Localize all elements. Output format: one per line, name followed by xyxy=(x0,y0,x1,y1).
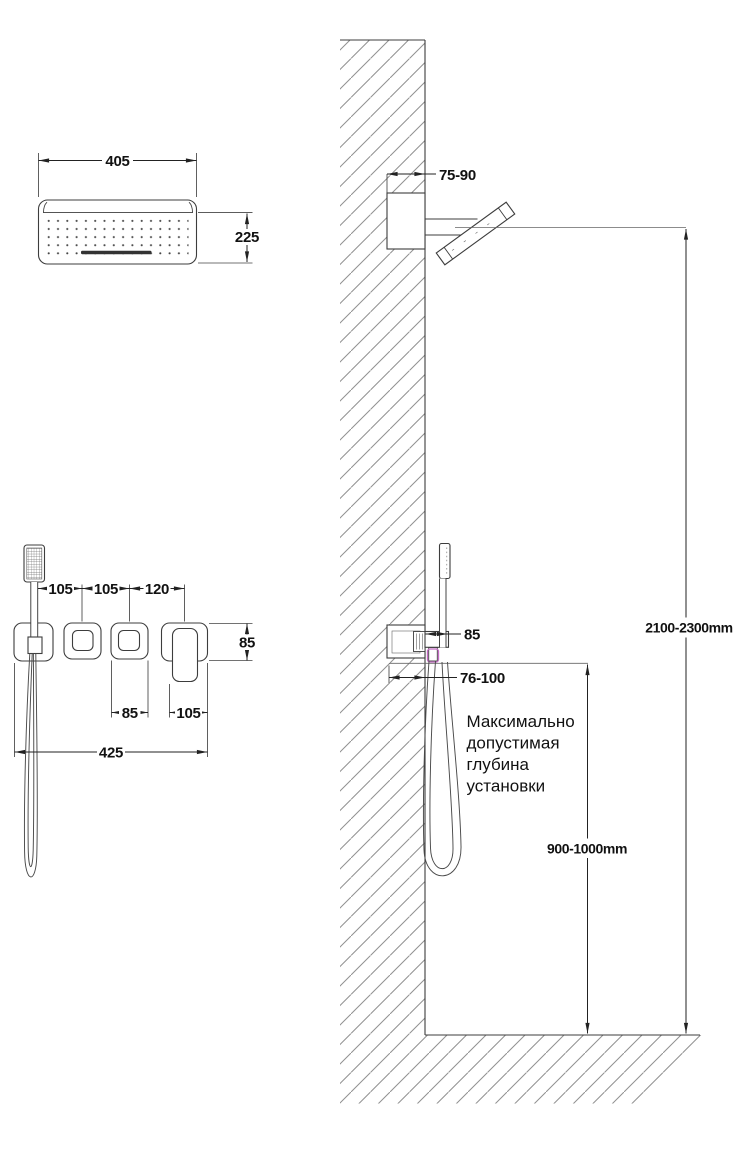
wall-section-view: 75-90 2100-2300mm xyxy=(340,40,735,1104)
dimension-225: 225 xyxy=(198,213,262,263)
dimension-label: 85 xyxy=(122,705,138,722)
wand-holder xyxy=(28,637,42,654)
dimension-spacing-row: 105 105 120 xyxy=(38,581,185,622)
installation-depth-note: Максимально допустимая глубина установки xyxy=(467,712,575,796)
dimension-label: 105 xyxy=(176,705,200,722)
hand-shower-wand xyxy=(24,545,45,877)
plate-valve-1 xyxy=(64,623,101,659)
dimension-2100-2300: 2100-2300mm xyxy=(455,228,735,1034)
dimension-label: 405 xyxy=(105,153,129,170)
shower-hose xyxy=(423,661,461,876)
dimension-label: 900-1000mm xyxy=(547,840,627,856)
note-line: допустимая xyxy=(467,734,560,753)
shower-hose-inner xyxy=(28,654,34,867)
note-line: Максимально xyxy=(467,712,575,731)
note-line: установки xyxy=(467,777,546,796)
mixer-lever xyxy=(173,629,198,682)
dimension-label: 120 xyxy=(145,581,169,598)
dimension-label: 225 xyxy=(235,229,259,246)
waterfall-slot xyxy=(81,251,152,254)
dimension-label: 425 xyxy=(99,744,123,761)
plate-valve-2 xyxy=(111,623,148,659)
tilted-shower-head xyxy=(436,202,514,265)
dimension-button-85: 85 xyxy=(112,661,149,722)
dimension-label: 76-100 xyxy=(460,670,505,687)
dimension-405: 405 xyxy=(39,153,197,198)
wand-spray-face xyxy=(27,548,42,579)
dimension-label: 105 xyxy=(48,581,72,598)
dimension-label: 2100-2300mm xyxy=(645,620,732,636)
note-line: глубина xyxy=(467,755,530,774)
shower-installation-diagram: 405 225 xyxy=(0,0,735,1160)
overhead-shower-top-view: 405 225 xyxy=(39,153,263,265)
dimension-label: 85 xyxy=(239,635,255,652)
dimension-label: 105 xyxy=(94,581,118,598)
recessed-mixer-box xyxy=(387,625,425,658)
dimension-plate-height-85: 85 xyxy=(209,624,258,661)
dimension-label: 85 xyxy=(464,626,480,643)
dimension-label: 75-90 xyxy=(439,167,476,184)
installation-drawing: 405 225 xyxy=(0,0,735,1160)
wand-head xyxy=(440,544,451,579)
hand-shower-and-controls-view: 105 105 120 85 85 105 xyxy=(14,545,258,877)
recessed-shower-arm-box xyxy=(387,193,425,249)
